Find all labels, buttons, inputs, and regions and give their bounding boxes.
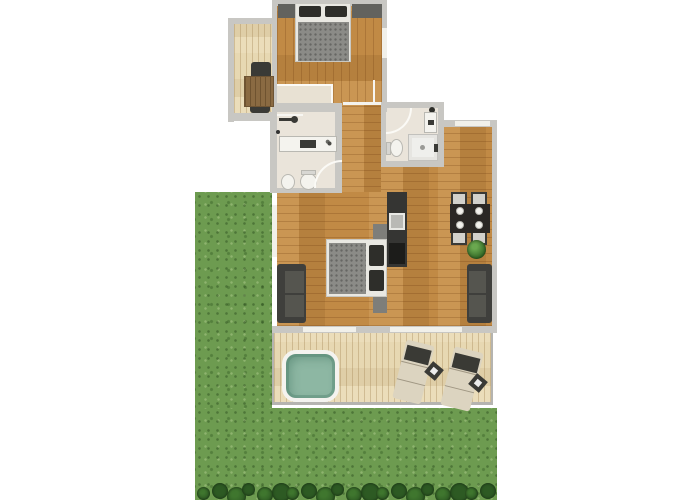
potted-plant-icon [467, 240, 486, 259]
shower-drain-icon [420, 145, 425, 150]
wall-bedroom-bottom [272, 103, 342, 112]
bed-top [295, 3, 351, 62]
sofa-right [467, 264, 492, 323]
cooktop [389, 243, 405, 264]
dining-chair [451, 231, 467, 245]
bed-blanket [298, 22, 349, 61]
plate-icon [456, 207, 464, 215]
wall-corridor-top [228, 18, 277, 24]
nightstand-bottom [373, 297, 387, 313]
desk [244, 76, 274, 107]
bedroom-door-leaf [373, 80, 375, 103]
basin-tap-icon [428, 120, 434, 125]
bed-blanket [329, 243, 366, 294]
terrace-door-left [303, 327, 356, 332]
sofa-cushion [469, 271, 486, 293]
door-handle-knob [291, 116, 298, 123]
light-switch-icon [276, 130, 280, 134]
wall-bathroom-right-bottom [381, 161, 444, 167]
nightstand-top [373, 224, 387, 240]
hallway-floor [342, 103, 381, 195]
plate-icon [475, 207, 483, 215]
wardrobe-right [352, 4, 382, 18]
faucet-icon [300, 140, 316, 148]
vanity-sink [279, 136, 337, 152]
vanity-deco-icon [325, 139, 334, 148]
wall-corridor-left [228, 18, 234, 122]
toilet-right [390, 139, 403, 157]
plate-icon [475, 221, 483, 229]
plate-icon [456, 221, 464, 229]
sofa-left [277, 264, 306, 323]
dining-table [450, 204, 490, 233]
bedroom-window [382, 28, 387, 58]
dining-window [455, 121, 490, 126]
garden-lawn-left [195, 192, 272, 408]
bed-pillow [369, 270, 384, 291]
side-table-tray [430, 367, 438, 375]
wall-main-right [492, 120, 497, 333]
bedroom-dresser [277, 84, 333, 103]
shower-tap-icon [434, 144, 438, 152]
toilet-tank [301, 170, 316, 175]
shower [408, 134, 438, 161]
bidet [281, 174, 295, 190]
sofa-cushion [285, 295, 304, 317]
wall-bathroom-right-outer [438, 102, 444, 167]
bed-pillow [299, 6, 321, 17]
bathroom-left-door-leaf [277, 114, 303, 116]
living-window-left [272, 205, 277, 257]
wall-bathroom-left-outer [270, 112, 275, 192]
bed-main [326, 239, 387, 297]
kitchen-sink [389, 213, 405, 230]
wash-basin [424, 112, 437, 133]
bed-pillow [369, 245, 384, 266]
sofa-cushion [285, 271, 304, 293]
floor-plan-canvas [0, 0, 700, 500]
bed-pillow [325, 6, 347, 17]
side-table-tray [474, 379, 482, 387]
sofa-cushion [469, 295, 486, 317]
garden-lawn-bottom [195, 408, 497, 500]
hallway-threshold [343, 102, 381, 105]
hot-tub [282, 350, 339, 402]
terrace-door-right [390, 327, 462, 332]
